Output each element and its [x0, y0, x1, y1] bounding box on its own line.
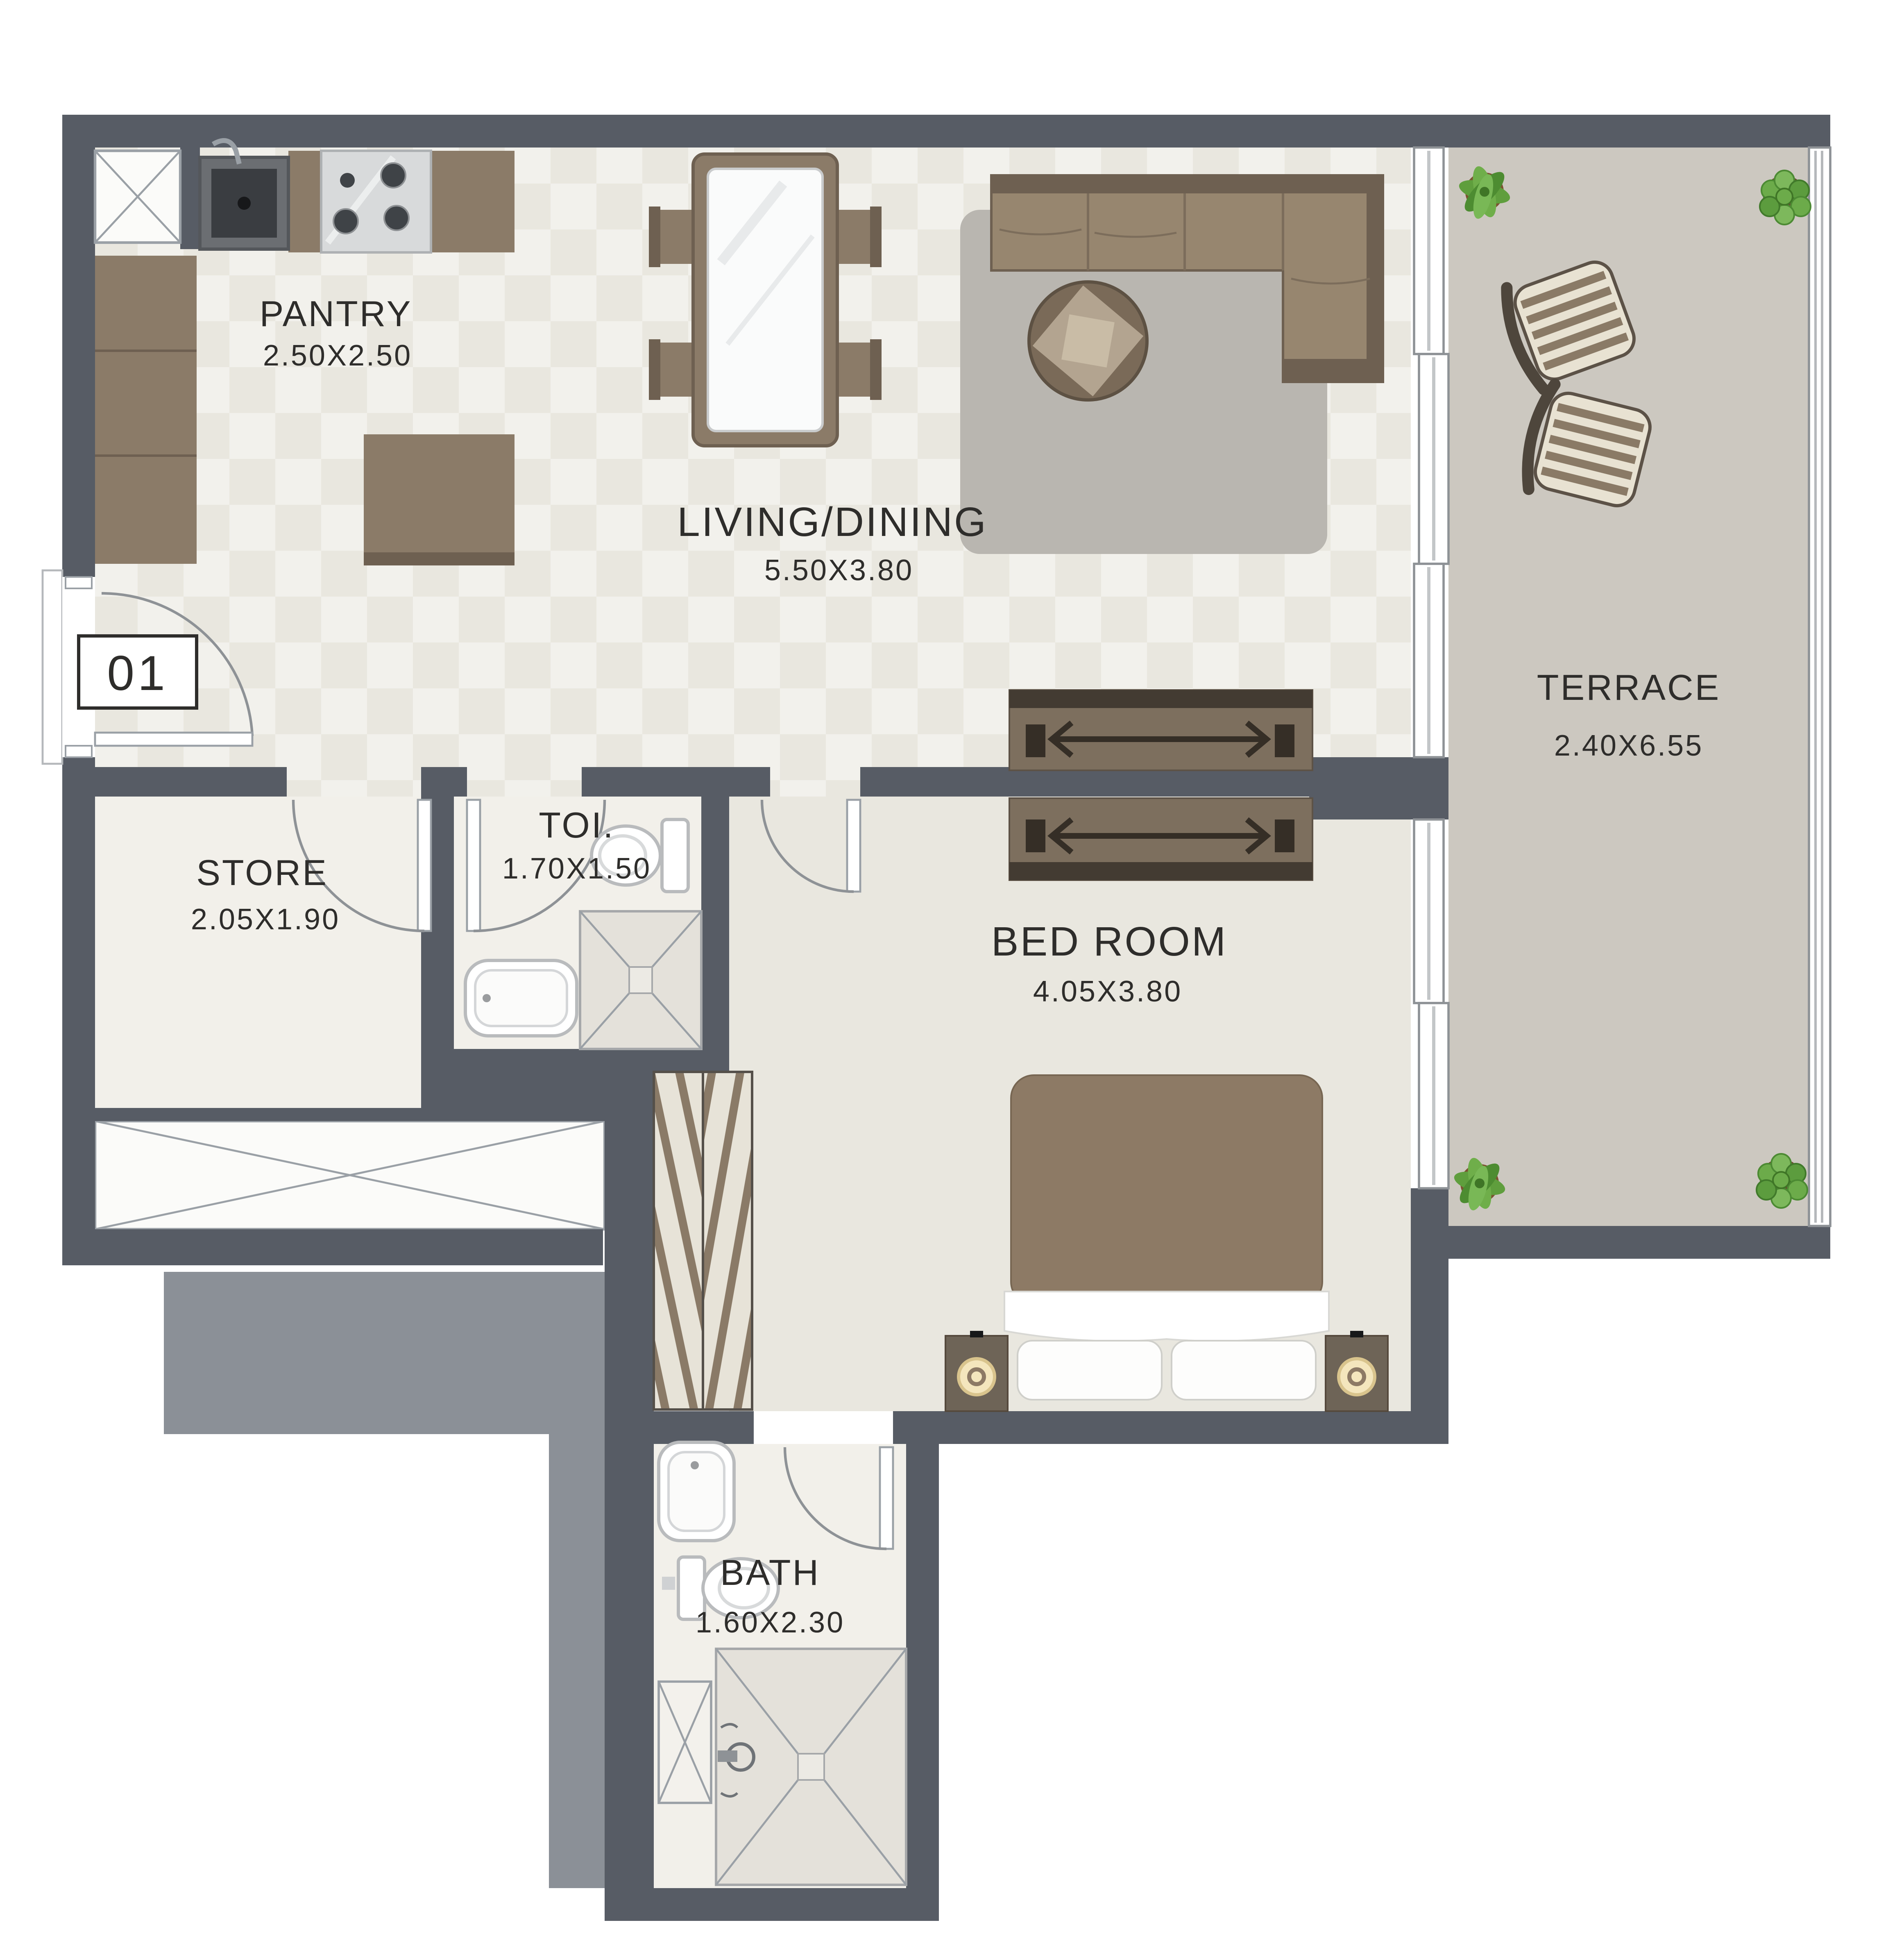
wall-toilet-right — [701, 797, 729, 1049]
store-door — [418, 800, 431, 931]
wall-left-upper — [62, 115, 95, 577]
tv-console-bedroom — [1009, 798, 1312, 880]
ducts — [95, 1121, 605, 1229]
wall-bottom-left — [62, 1229, 603, 1265]
burner-icon — [333, 209, 358, 234]
shower — [580, 911, 701, 1049]
living-dining-label: LIVING/DINING — [677, 499, 988, 545]
wall-fill — [454, 1072, 605, 1121]
wall-kitchen-fill — [180, 148, 200, 249]
wall-terrace-bottom — [1448, 1226, 1830, 1259]
living-dining-dims: 5.50X3.80 — [764, 554, 913, 587]
store-floor — [95, 797, 421, 1108]
duct-shaft — [659, 1682, 711, 1803]
pantry-label: PANTRY — [260, 293, 413, 334]
shower-drain-icon — [798, 1754, 824, 1780]
bath-dims: 1.60X2.30 — [696, 1606, 845, 1639]
washbasin — [465, 960, 577, 1036]
bath-door — [880, 1447, 893, 1549]
terrace-dims: 2.40X6.55 — [1554, 729, 1703, 762]
living-set — [960, 175, 1383, 554]
wall-wardrobe-left — [605, 1072, 654, 1888]
wall — [164, 1272, 598, 1434]
shower — [716, 1649, 906, 1885]
secondary-walls — [164, 1272, 605, 1888]
nightstand — [1326, 1331, 1388, 1411]
bed-duvet — [1011, 1075, 1322, 1305]
terrace-label: TERRACE — [1537, 667, 1721, 708]
pillow — [1172, 1341, 1316, 1400]
wall-hall — [582, 767, 770, 797]
wall-top — [62, 115, 1830, 148]
store-dims: 2.05X1.90 — [191, 903, 340, 936]
burner-icon — [381, 163, 406, 188]
kitchen-island-edge — [364, 552, 515, 565]
kitchen-counter — [431, 151, 515, 252]
toilet-dims: 1.70X1.50 — [502, 852, 651, 885]
wall-divider-block — [1309, 757, 1448, 819]
bedroom-label: BED ROOM — [991, 919, 1227, 965]
wardrobe — [654, 1072, 752, 1410]
bedroom-dims: 4.05X3.80 — [1033, 975, 1182, 1008]
floor-plan-page: 01 PANTRY 2.50X2.50 LIVING/DINING 5.50X3… — [0, 0, 1904, 1934]
pantry-dims: 2.50X2.50 — [263, 339, 412, 372]
wall-hall — [95, 767, 287, 797]
wall-living-bedroom — [860, 767, 1312, 797]
wall-store-bottom — [95, 1108, 454, 1121]
entrance-landing — [43, 570, 62, 764]
toilet-door — [467, 800, 480, 931]
burner-icon — [340, 173, 355, 188]
bed-sheet — [1004, 1292, 1329, 1341]
pillow — [1018, 1341, 1162, 1400]
entrance-door — [95, 733, 252, 746]
terrace-railing — [1809, 148, 1830, 1226]
wall-bedroom-right — [1411, 1188, 1448, 1444]
kitchen-counter — [288, 151, 321, 252]
burner-icon — [384, 206, 409, 230]
toilet-label: TOI. — [539, 805, 615, 845]
washbasin — [659, 1442, 734, 1541]
floor-plan-svg: 01 PANTRY 2.50X2.50 LIVING/DINING 5.50X3… — [0, 0, 1904, 1934]
bath-label: BATH — [720, 1552, 820, 1593]
wall-bath-top — [654, 1411, 754, 1444]
unit-number-badge: 01 — [79, 636, 197, 708]
shower-drain-icon — [629, 967, 652, 993]
coffee-table — [1029, 282, 1147, 400]
wall-bath-right — [906, 1444, 939, 1888]
bedroom-door — [847, 800, 860, 892]
store-label: STORE — [196, 852, 328, 893]
wall — [549, 1272, 605, 1888]
unit-number: 01 — [107, 646, 168, 701]
door-jamb — [66, 746, 92, 757]
wall-left-lower — [62, 757, 95, 1265]
wall-bedroom-bottom — [893, 1411, 1448, 1444]
kitchen-island — [364, 434, 515, 565]
stove — [321, 151, 431, 252]
nightstand — [945, 1331, 1008, 1411]
tv-console-living — [1009, 690, 1312, 770]
wall-bath-bottom — [605, 1888, 939, 1921]
sink-drain-icon — [238, 197, 251, 210]
wall-hall — [421, 767, 467, 797]
kitchen-counter — [95, 256, 197, 564]
wall-toilet-bottom — [454, 1049, 729, 1072]
flush-icon — [662, 1577, 675, 1590]
door-jamb — [66, 577, 92, 588]
